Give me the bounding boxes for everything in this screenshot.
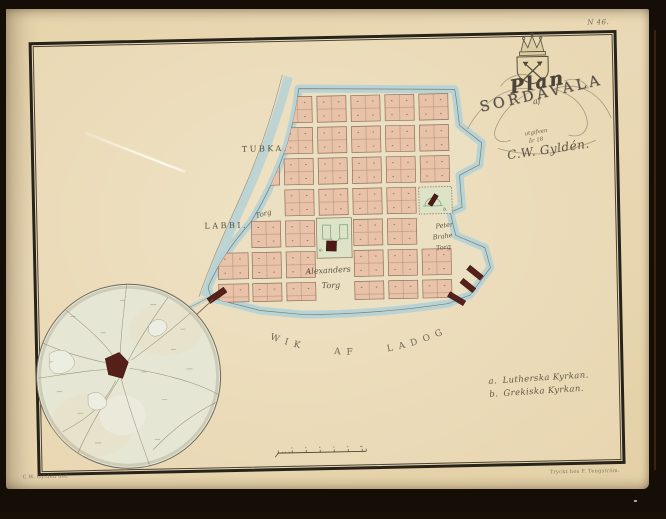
dust-speck [634, 500, 637, 502]
city-block [387, 218, 417, 245]
photo-edge-right [649, 0, 666, 512]
city-block [386, 156, 416, 183]
greek-church-square: b. [419, 186, 453, 214]
city-block [351, 126, 381, 153]
city-block [389, 280, 418, 299]
city-block [385, 125, 415, 152]
town-plan-map: a. b. TUBKA. LABBI. Torg Alexanders Torg… [0, 0, 666, 519]
city-block [388, 249, 418, 276]
label-tubka: TUBKA. [242, 144, 289, 154]
label-alexanders-torg-2: Torg [322, 281, 341, 290]
label-labbi: LABBI. [204, 221, 248, 231]
city-block [353, 219, 383, 246]
legend-key-a: a. [488, 375, 500, 389]
city-block [319, 189, 349, 216]
city-block [284, 158, 314, 185]
city-block [387, 187, 417, 214]
city-block [283, 96, 313, 123]
city-block [422, 248, 452, 275]
city-block [420, 155, 450, 182]
plate-number: N 46. [587, 18, 609, 26]
city-block [355, 281, 384, 300]
lutheran-church-square: a. [316, 218, 352, 259]
lutheran-church-building [326, 241, 336, 251]
photo-edge-bottom [0, 489, 666, 512]
imprint-left: C.W. Gyldén del. [23, 474, 69, 481]
city-block [285, 220, 315, 247]
page-stack-edge [654, 30, 656, 470]
scale-bar [275, 446, 366, 457]
city-block [354, 250, 384, 277]
city-block [318, 158, 348, 185]
city-block [352, 157, 382, 184]
city-block [353, 188, 383, 215]
church-marker-b: b. [443, 207, 448, 213]
photo-edge-top [0, 0, 666, 9]
city-block [423, 279, 452, 298]
photo-edge-left [0, 0, 6, 512]
city-block [285, 189, 315, 216]
inset-region-map [35, 282, 223, 470]
city-block [317, 96, 347, 123]
church-marker-a: a. [319, 248, 324, 253]
city-block [419, 93, 449, 120]
city-block [317, 127, 347, 154]
city-block [251, 221, 281, 248]
city-block [385, 94, 415, 121]
city-block [253, 283, 282, 302]
city-block [351, 95, 381, 122]
city-block [252, 252, 282, 279]
scanned-sheet: a. b. TUBKA. LABBI. Torg Alexanders Torg… [0, 0, 666, 519]
city-block [419, 124, 449, 151]
legend-key-b: b. [489, 388, 501, 402]
city-block [287, 282, 316, 301]
